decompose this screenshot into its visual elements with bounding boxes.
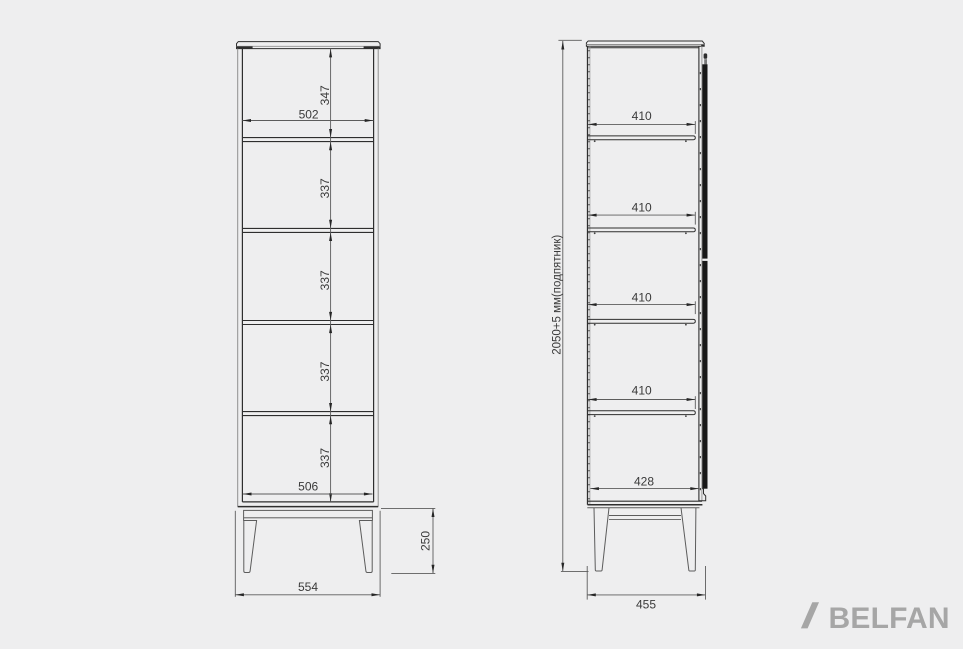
svg-text:347: 347 [318,85,332,105]
svg-text:2050+5 мм(подпятник): 2050+5 мм(подпятник) [551,235,563,355]
svg-text:410: 410 [632,109,652,123]
svg-text:502: 502 [299,108,319,122]
svg-text:428: 428 [634,474,654,488]
svg-text:BELFAN: BELFAN [829,602,950,635]
svg-text:410: 410 [632,291,652,305]
svg-text:554: 554 [298,580,318,594]
svg-text:337: 337 [318,178,332,198]
svg-text:506: 506 [298,480,318,494]
svg-text:337: 337 [318,448,332,468]
svg-text:337: 337 [318,270,332,290]
svg-text:410: 410 [632,201,652,215]
svg-text:250: 250 [419,531,433,551]
svg-text:455: 455 [636,598,656,612]
svg-text:337: 337 [318,361,332,381]
svg-text:410: 410 [632,383,652,397]
